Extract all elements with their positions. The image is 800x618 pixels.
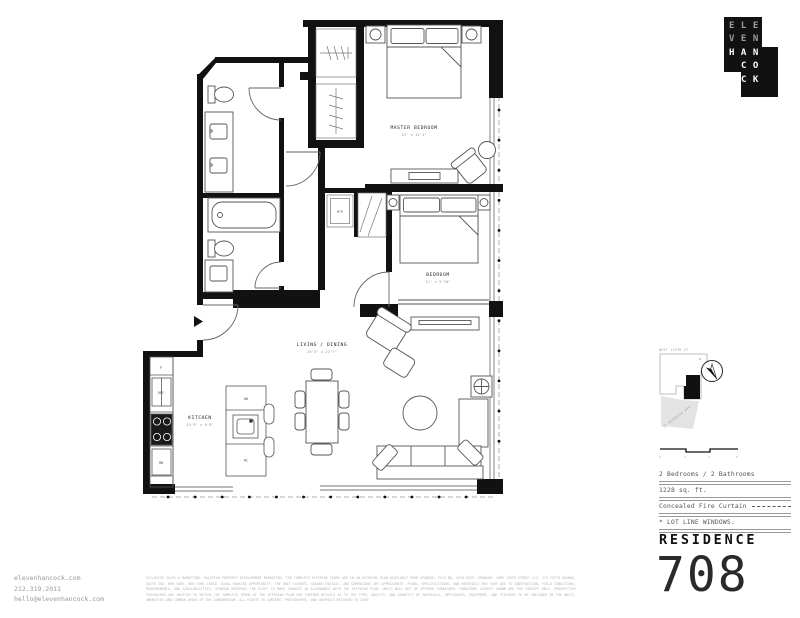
svg-text:2: 2 [684, 455, 686, 459]
nightstand [478, 195, 490, 210]
nightstand [462, 26, 481, 43]
svg-text:4: 4 [708, 455, 710, 459]
refrigerator-label: REF [158, 391, 164, 395]
dining-table [306, 381, 338, 443]
compass-n-label: N [699, 357, 701, 361]
legal-disclaimer: EXCLUSIVE SALES & MARKETING: HALSTEAD PR… [146, 576, 576, 604]
master-bedroom-label: MASTER BEDROOM [390, 125, 437, 131]
residence-number: 708 [656, 551, 749, 599]
kitchen-dims: 15'9" x 9'8" [186, 422, 213, 427]
logo-row: CK [741, 74, 765, 87]
linen-closet [358, 193, 386, 237]
nightstand [366, 26, 385, 43]
coffee-table [403, 396, 437, 430]
contact-email: hello@elevenhancock.com [14, 594, 104, 605]
residence-label: RESIDENCE [659, 532, 757, 548]
spec-fire-curtain: Concealed Fire Curtain [659, 501, 791, 513]
living-dining-label: LIVING / DINING [297, 342, 348, 348]
wine-cooler-label: WC [244, 459, 248, 463]
ottoman [382, 347, 416, 379]
key-plan: WEST 125TH ST ST NICHOLAS AVE N 0 2 4 8 [659, 348, 738, 459]
wd-label: W/D [337, 210, 343, 214]
logo-row: VEN [729, 33, 765, 46]
master-bath-door [249, 88, 281, 120]
toilet [208, 86, 234, 103]
stool [264, 437, 274, 457]
logo-row: HAN [729, 47, 765, 60]
street-label-top: WEST 125TH ST [659, 348, 688, 352]
fire-curtain-dash-line [752, 506, 791, 507]
closet-2 [316, 84, 356, 138]
bedroom-dims: 11' x 9'10" [425, 279, 450, 284]
spec-lot-line-windows: * LOT LINE WINDOWS. [659, 517, 791, 529]
vanity-2 [205, 260, 233, 292]
microwave-label: MW [159, 461, 163, 465]
bath2-door [255, 262, 281, 288]
floorplan-sheet: MASTER BEDROOM 15' x 12'3" BEDROOM 11' x… [0, 0, 800, 618]
master-bedroom-dims: 15' x 12'3" [401, 132, 426, 137]
logo-row: ELE [729, 20, 765, 33]
scale-bar: 0 2 4 8 [659, 449, 738, 459]
contact-website: elevenhancock.com [14, 573, 104, 584]
svg-text:8: 8 [736, 455, 738, 459]
closets [316, 29, 386, 237]
double-vanity [205, 112, 233, 192]
entry-arrow-icon [194, 316, 203, 327]
toilet-2 [208, 240, 234, 257]
side-table [471, 376, 492, 397]
contact-block: elevenhancock.com 212.319.2011 hello@ele… [14, 573, 104, 605]
nightstand [387, 195, 399, 210]
logo-row: CO [741, 60, 765, 73]
dishwasher-label: DW [244, 397, 248, 401]
entry-door [203, 305, 238, 340]
spec-area: 1228 sq. ft. [659, 485, 791, 497]
spec-fire-curtain-text: Concealed Fire Curtain [659, 503, 747, 510]
living-room-furniture [363, 306, 492, 479]
bathtub [208, 198, 280, 232]
partition-bedroom2 [398, 300, 489, 304]
pantry-label: P [160, 366, 162, 370]
spec-bed-bath: 2 Bedrooms / 2 Bathrooms [659, 469, 791, 481]
kitchen-label: KITCHEN [188, 415, 212, 421]
bedroom2-door [354, 272, 389, 307]
spec-sheet: 2 Bedrooms / 2 Bathrooms 1228 sq. ft. Co… [659, 469, 791, 533]
bedroom-label: BEDROOM [426, 272, 450, 278]
master-bedroom-door [286, 152, 320, 186]
bathroom-fixtures [205, 86, 280, 292]
master-bed [387, 25, 461, 98]
master-bedroom-furniture [366, 25, 496, 186]
dining-set [295, 369, 349, 455]
bed [400, 195, 478, 263]
contact-phone: 212.319.2011 [14, 584, 104, 595]
svg-text:0: 0 [659, 455, 661, 459]
tv-console [411, 317, 479, 330]
unit-location-marker [684, 375, 700, 399]
stool [264, 404, 274, 424]
living-dining-dims: 25'3" x 21'7" [307, 349, 337, 354]
bedroom2-furniture [387, 195, 490, 263]
closet-1 [316, 29, 356, 77]
kitchen-island [226, 386, 274, 476]
dresser [391, 169, 458, 183]
